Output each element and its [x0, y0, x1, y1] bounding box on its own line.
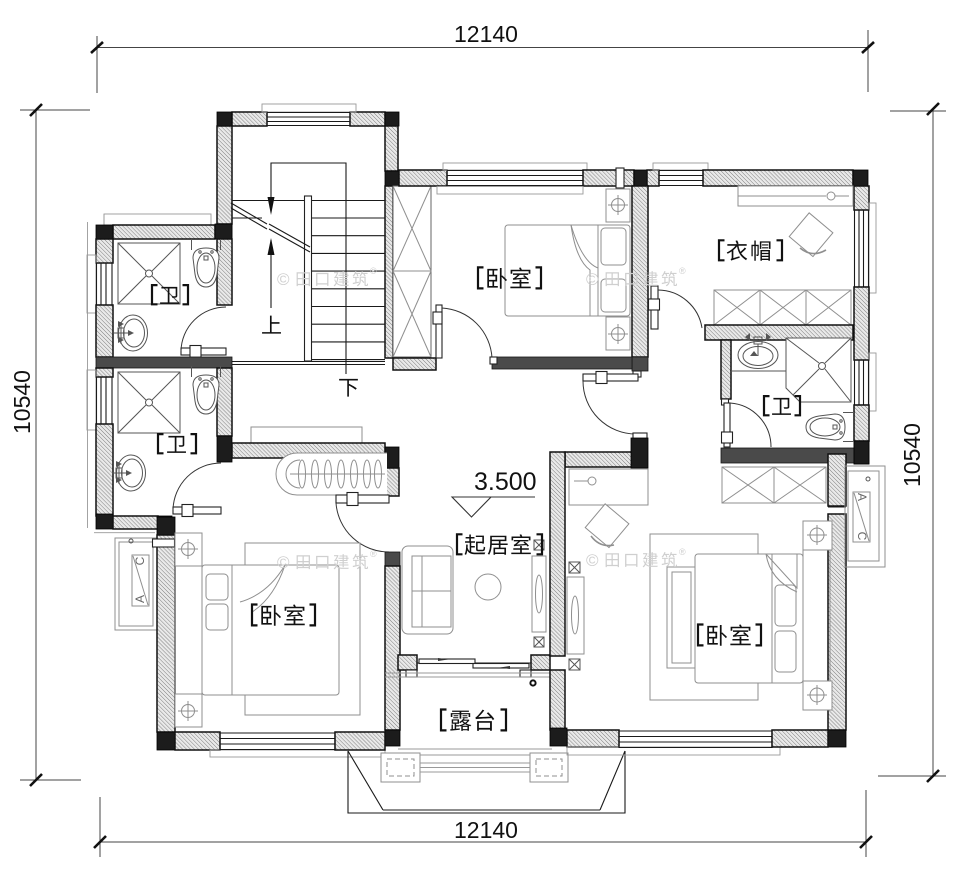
svg-text:®: ®: [370, 266, 377, 276]
svg-text:10540: 10540: [9, 370, 35, 434]
svg-text:®: ®: [679, 266, 686, 276]
svg-text:12140: 12140: [454, 21, 518, 47]
svg-text:©: ©: [586, 270, 599, 289]
svg-text:3.500: 3.500: [474, 468, 537, 496]
svg-text:©: ©: [277, 553, 290, 572]
svg-text:10540: 10540: [899, 423, 925, 487]
svg-text:©: ©: [586, 551, 599, 570]
svg-text:®: ®: [370, 549, 377, 559]
svg-text:A: A: [855, 493, 869, 501]
svg-text:A: A: [133, 595, 147, 603]
svg-text:©: ©: [277, 270, 290, 289]
svg-text:C: C: [855, 532, 869, 541]
svg-text:C: C: [133, 556, 147, 565]
svg-text:12140: 12140: [454, 817, 518, 843]
svg-text:®: ®: [679, 547, 686, 557]
